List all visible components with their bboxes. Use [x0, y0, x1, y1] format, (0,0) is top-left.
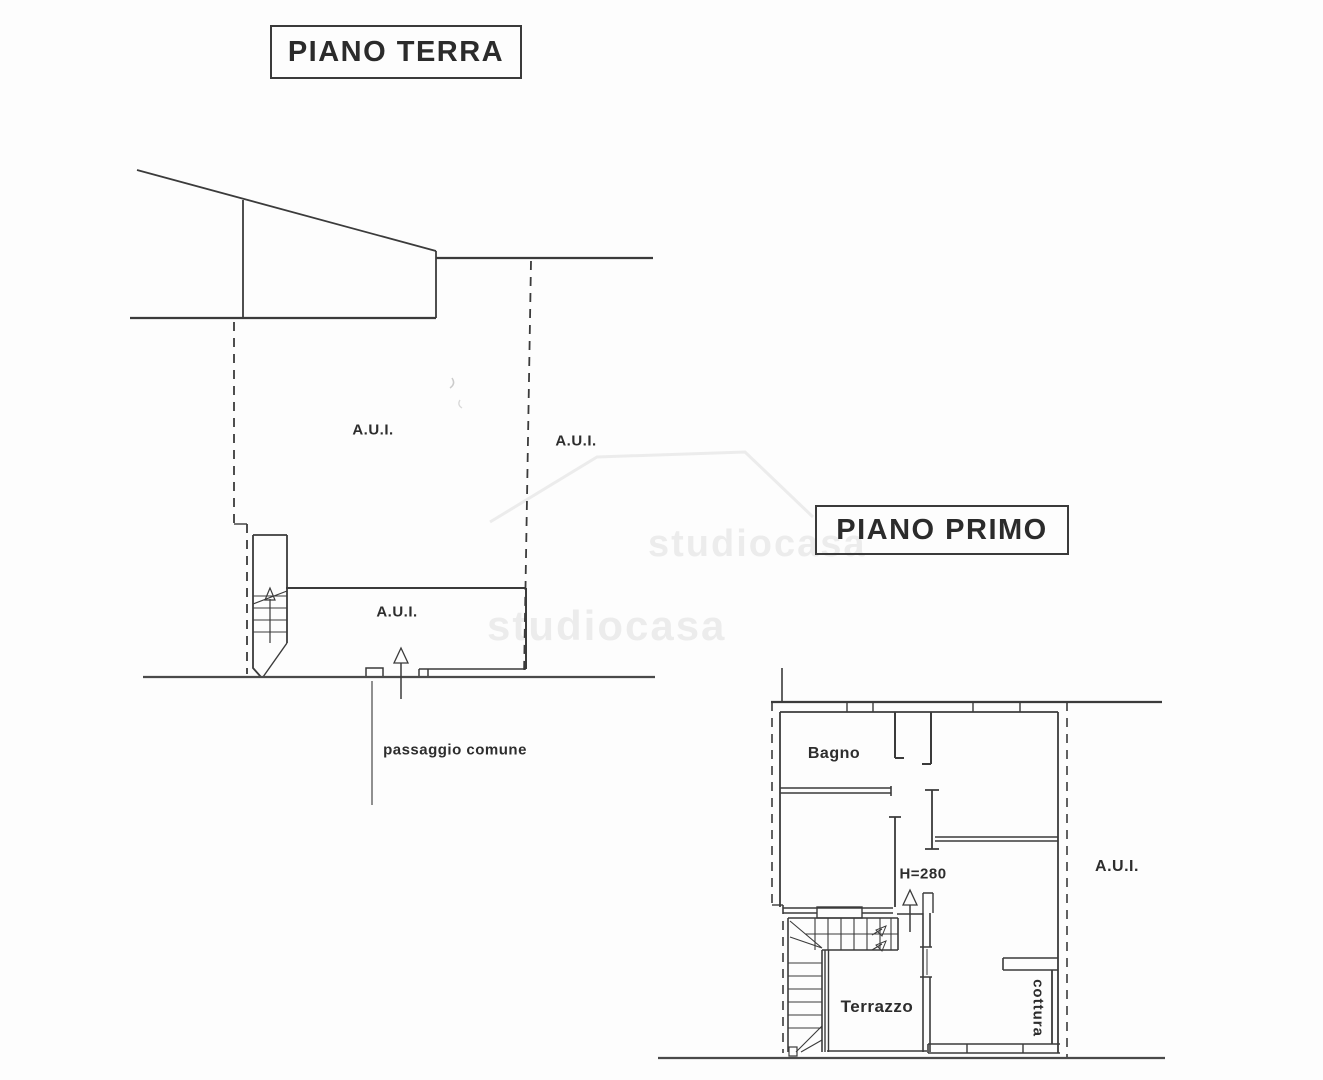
partition-wall-door-jamb [922, 712, 931, 764]
mid-horizontal-wall [935, 837, 1058, 841]
ground-floor-drawing [130, 170, 655, 805]
ground-floor-title: PIANO TERRA [270, 25, 522, 79]
door-jambs [920, 947, 932, 977]
stair-treads [788, 963, 822, 1028]
partition-wall [889, 817, 901, 907]
door-block [366, 668, 383, 677]
room-bottom-wall [928, 1044, 1060, 1053]
floor-plan-linework: studiocasa studiocasa [0, 0, 1323, 1080]
label-terrazzo: Terrazzo [841, 997, 914, 1017]
partition-wall-door-jamb [895, 712, 904, 758]
stair-direction-arrowhead [265, 588, 275, 600]
label-bagno: Bagno [808, 745, 860, 763]
room-bottom-wall [783, 908, 893, 913]
stair-break-line [796, 1026, 822, 1052]
bagno-bottom-wall [780, 786, 891, 796]
label-height-note: H=280 [899, 866, 946, 883]
floor-plan-page: studiocasa studiocasa [0, 0, 1323, 1080]
label-passaggio-comune: passaggio comune [383, 742, 527, 759]
scan-smudge-icon [450, 378, 454, 388]
terrazzo-right-wall [923, 913, 930, 1052]
label-aui-room: A.U.I. [376, 604, 417, 621]
wall-stub [923, 893, 933, 913]
cottura-niche-wall [1003, 958, 1058, 970]
roof-slope-line [137, 170, 436, 251]
aui-room-low-wall [419, 669, 526, 677]
stair-left-edge [253, 535, 261, 677]
stair-bottom-cut [263, 643, 287, 677]
entrance-arrowhead [394, 648, 408, 663]
height-arrowhead [903, 890, 917, 905]
window-marks [967, 1044, 1023, 1053]
label-cottura: cottura [1030, 979, 1047, 1037]
window-marks [973, 702, 1020, 712]
label-aui-right: A.U.I. [1095, 858, 1139, 876]
window-marks [847, 702, 873, 712]
watermark-text-lower: studiocasa [487, 602, 726, 649]
watermark: studiocasa studiocasa [487, 452, 867, 649]
corridor-wall [925, 790, 939, 849]
terrazzo-left-wall [825, 950, 829, 1052]
label-aui-upper-left: A.U.I. [352, 422, 393, 439]
scan-smudge-icon [459, 400, 462, 408]
first-floor-title: PIANO PRIMO [815, 505, 1069, 555]
label-aui-upper-right: A.U.I. [555, 433, 596, 450]
